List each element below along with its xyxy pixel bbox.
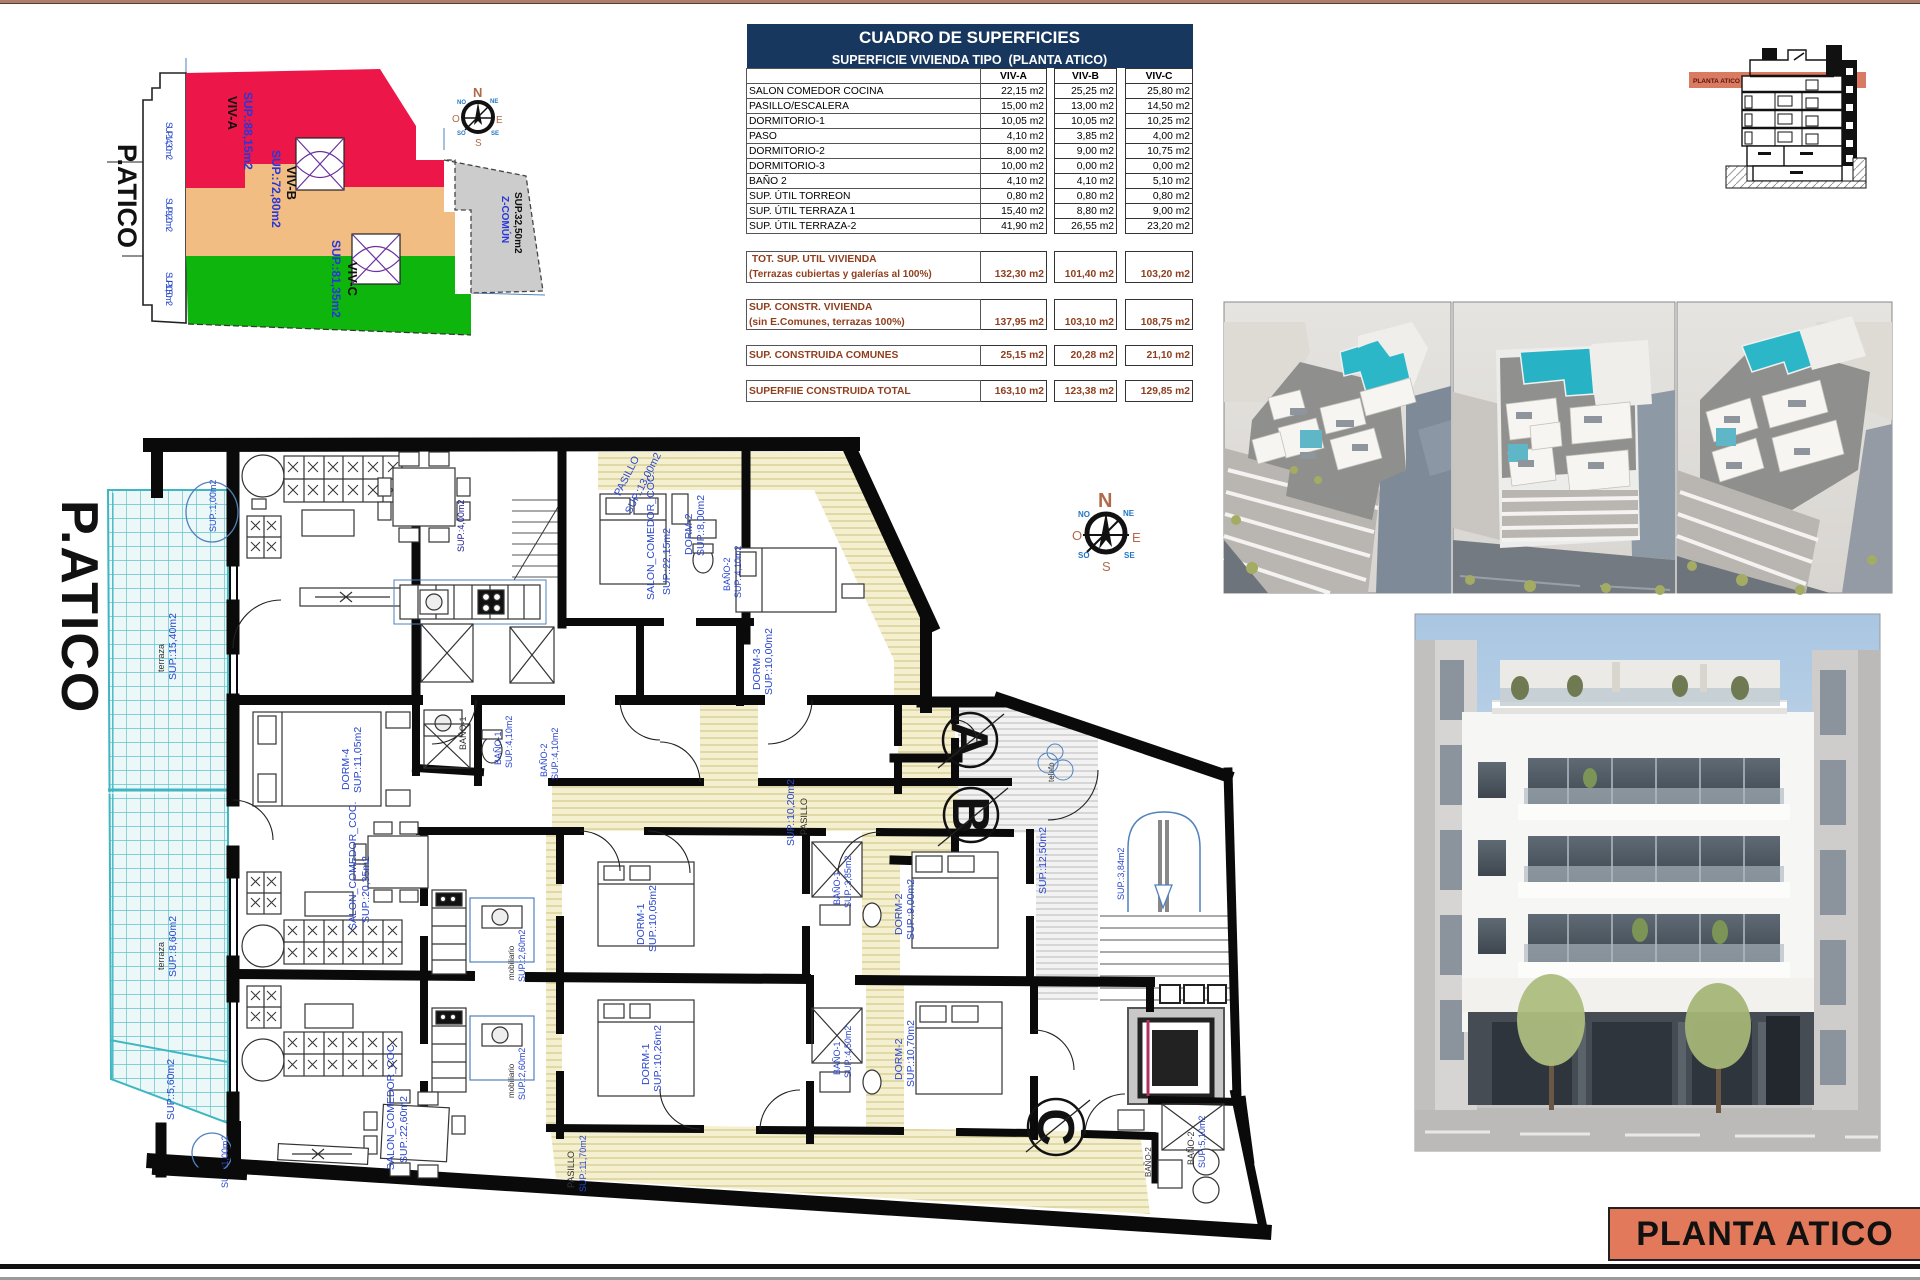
svg-text:BAÑO-1: BAÑO-1: [458, 716, 468, 750]
svg-text:SUP.:88,15m2: SUP.:88,15m2: [241, 92, 255, 170]
svg-text:SO: SO: [1078, 551, 1090, 560]
svg-text:VIV-A: VIV-A: [225, 96, 240, 131]
svg-text:SUP.:1,00m2: SUP.:1,00m2: [220, 1136, 230, 1188]
svg-text:N: N: [1098, 490, 1112, 512]
svg-text:SUP.:9,00m2: SUP.:9,00m2: [905, 879, 917, 940]
svg-text:SUP.:22,15m2: SUP.:22,15m2: [661, 528, 673, 595]
svg-text:SUP.:10,26m2: SUP.:10,26m2: [652, 1025, 664, 1092]
svg-text:O: O: [452, 114, 460, 125]
svg-text:SUP.:4,10m2: SUP.:4,10m2: [504, 716, 514, 768]
svg-text:DORM-2: DORM-2: [683, 513, 695, 555]
svg-text:SUP.32,50m2: SUP.32,50m2: [512, 192, 523, 254]
svg-text:SUP.:12,50m2: SUP.:12,50m2: [1037, 827, 1049, 894]
svg-text:PLANTA ATICO: PLANTA ATICO: [1693, 78, 1740, 85]
svg-text:SALON_COMEDOR_COC.: SALON_COMEDOR_COC.: [385, 1042, 397, 1170]
svg-text:SUP.:22,60m2: SUP.:22,60m2: [398, 1096, 410, 1163]
svg-text:SUP.:8,60m2: SUP.:8,60m2: [167, 916, 179, 977]
svg-text:DORM-4: DORM-4: [340, 748, 352, 790]
svg-text:terraza: terraza: [156, 644, 166, 672]
svg-text:DORM-2: DORM-2: [893, 893, 905, 935]
svg-text:S: S: [1102, 559, 1111, 574]
svg-text:Z-COMÚN: Z-COMÚN: [499, 196, 512, 243]
svg-text:BAÑO-2: BAÑO-2: [539, 743, 549, 777]
svg-text:SUP.:1,00m2: SUP.:1,00m2: [208, 480, 218, 532]
svg-text:O: O: [1072, 528, 1082, 543]
svg-text:DORM-3: DORM-3: [751, 648, 763, 690]
svg-text:BAÑO-1: BAÑO-1: [832, 1041, 842, 1075]
svg-text:SUP.:72,80m2: SUP.:72,80m2: [269, 150, 283, 228]
svg-text:SUP.:15,40m2: SUP.:15,40m2: [167, 613, 179, 680]
svg-text:SUP.:5,10m2: SUP.:5,10m2: [1197, 1116, 1207, 1168]
svg-text:NE: NE: [490, 99, 498, 105]
svg-text:SUP.:4,00m2: SUP.:4,00m2: [456, 500, 466, 552]
svg-text:SUP.:3,84m2: SUP.:3,84m2: [1116, 848, 1126, 900]
svg-text:mobiliario: mobiliario: [507, 945, 516, 980]
svg-text:SUP.:2,60m2: SUP.:2,60m2: [517, 1048, 527, 1100]
svg-text:SALON_COMEDOR_COC.: SALON_COMEDOR_COC.: [645, 472, 657, 600]
svg-text:SUP.:11,70m2: SUP.:11,70m2: [578, 1135, 588, 1192]
svg-text:DORM-1: DORM-1: [640, 1043, 652, 1085]
svg-text:N: N: [473, 85, 482, 100]
svg-text:PASILLO: PASILLO: [799, 798, 809, 835]
svg-text:DORM-1: DORM-1: [635, 903, 647, 945]
svg-text:S: S: [475, 138, 482, 149]
svg-text:BAÑO-1: BAÑO-1: [832, 871, 842, 905]
svg-text:SUP.:10,05m2: SUP.:10,05m2: [647, 885, 659, 952]
svg-text:SUP.:11,05m2: SUP.:11,05m2: [352, 727, 364, 793]
svg-text:VIV-C: VIV-C: [345, 262, 360, 297]
svg-text:BAÑO-2: BAÑO-2: [1144, 1147, 1153, 1177]
svg-text:SUP.:3,85m2: SUP.:3,85m2: [843, 856, 853, 908]
svg-text:SUP.:5,60m2: SUP.:5,60m2: [165, 1059, 177, 1120]
svg-text:SUP.10,50m2: SUP.10,50m2: [164, 272, 174, 306]
svg-text:BAÑO-2: BAÑO-2: [722, 557, 732, 591]
svg-text:SO: SO: [457, 131, 466, 137]
svg-text:NE: NE: [1123, 509, 1135, 518]
svg-text:terraza: terraza: [156, 942, 166, 970]
svg-text:P.ATICO: P.ATICO: [50, 500, 108, 714]
svg-text:VIV-B: VIV-B: [284, 166, 299, 200]
svg-text:SUP.:4,50m2: SUP.:4,50m2: [843, 1026, 853, 1078]
svg-text:P.ATICO: P.ATICO: [112, 144, 142, 248]
svg-text:mobiliario: mobiliario: [507, 1063, 516, 1098]
svg-text:NO: NO: [457, 100, 466, 106]
svg-text:C: C: [1026, 1108, 1084, 1146]
svg-text:E: E: [496, 115, 503, 126]
svg-text:SALON_COMEDOR_COC.: SALON_COMEDOR_COC.: [347, 802, 359, 930]
svg-text:SUP.:20,35m2: SUP.:20,35m2: [360, 856, 372, 923]
svg-text:SUP.:10,70m2: SUP.:10,70m2: [905, 1020, 917, 1087]
svg-text:SE: SE: [491, 131, 499, 137]
svg-text:SUP.9,20m2: SUP.9,20m2: [164, 198, 174, 232]
svg-text:SUP.:81,35m2: SUP.:81,35m2: [329, 240, 343, 318]
svg-text:E: E: [1132, 530, 1141, 545]
svg-text:DORM-2: DORM-2: [893, 1038, 905, 1080]
svg-text:SE: SE: [1124, 551, 1135, 560]
svg-text:SUP.:2,60m2: SUP.:2,60m2: [517, 930, 527, 982]
svg-text:SUP.:4,10m2: SUP.:4,10m2: [550, 728, 560, 780]
svg-text:PASILLO: PASILLO: [566, 1151, 576, 1188]
svg-text:SUP.:4,10m2: SUP.:4,10m2: [733, 546, 743, 598]
svg-text:SUP.14,30m2: SUP.14,30m2: [164, 122, 174, 160]
svg-text:SUP.:8,00m2: SUP.:8,00m2: [695, 495, 707, 556]
svg-text:BAÑO-1: BAÑO-1: [493, 731, 503, 765]
svg-text:SUP.:10,20m2: SUP.:10,20m2: [785, 779, 797, 846]
svg-text:SUP.:10,00m2: SUP.:10,00m2: [763, 628, 775, 695]
svg-text:NO: NO: [1078, 510, 1090, 519]
svg-text:BAÑO-2: BAÑO-2: [1186, 1131, 1196, 1165]
